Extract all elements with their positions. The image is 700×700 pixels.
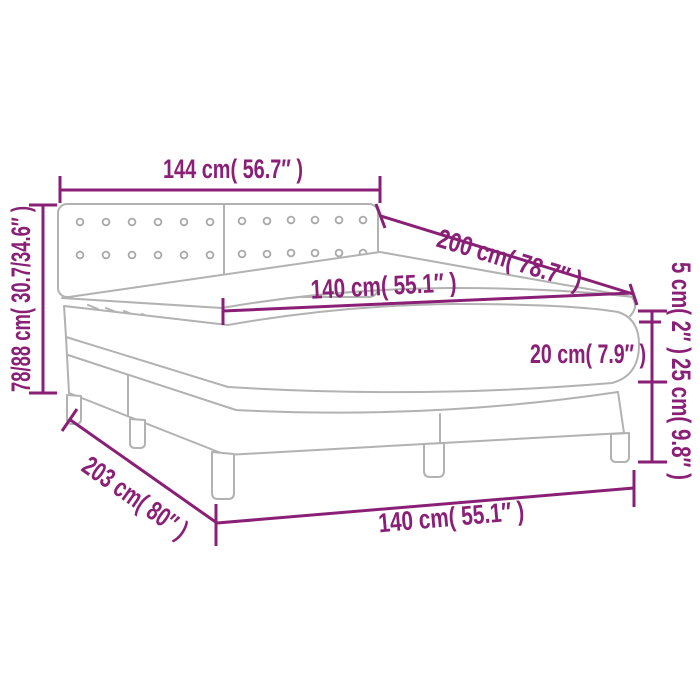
tufting-button (77, 219, 84, 226)
tufting-button (181, 219, 188, 226)
tufting-button (264, 218, 271, 225)
tufting-button (129, 252, 136, 259)
diagram-canvas: 144 cm( 56.7″ ) 78/88 cm( 30.7/34.6″ ) 2… (0, 0, 700, 700)
tufting-button (155, 219, 162, 226)
dim-label-mattress-height: 20 cm( 7.9″ ) (530, 339, 646, 369)
bed-leg (424, 443, 444, 477)
tufting-button (207, 219, 214, 226)
dim-label-topper-height: 5 cm( 2″ ) (666, 262, 696, 354)
tufting-button (239, 251, 246, 258)
dim-label-base-width: 140 cm( 55.1″ ) (377, 496, 525, 539)
bed-dimension-diagram: 144 cm( 56.7″ ) 78/88 cm( 30.7/34.6″ ) 2… (0, 0, 700, 700)
tufting-button (103, 252, 110, 259)
tufting-button (288, 217, 295, 224)
tufting-button (181, 252, 188, 259)
bed-legs (67, 395, 629, 499)
tufting-button (312, 250, 319, 257)
dimension-right-heights: 5 cm( 2″ ) 25 cm( 9.8″ ) (638, 262, 696, 480)
tufting-button (103, 219, 110, 226)
dim-label-total-height: 78/88 cm( 30.7/34.6″ ) (6, 206, 36, 392)
dim-label-headboard-width: 144 cm( 56.7″ ) (163, 154, 303, 184)
bed-leg (212, 452, 234, 499)
dimension-headboard-width: 144 cm( 56.7″ ) (60, 154, 380, 203)
bed-leg (611, 433, 629, 462)
tufting-button (239, 218, 246, 225)
tufting-button (264, 251, 271, 258)
tufting-button (336, 250, 343, 257)
tufting-button (129, 219, 136, 226)
dim-label-base-height: 25 cm( 9.8″ ) (666, 358, 696, 480)
tufting-button (312, 217, 319, 224)
bed-leg (130, 419, 145, 448)
tufting-button (155, 252, 162, 259)
tufting-button (336, 217, 343, 224)
dimension-mattress-height: 20 cm( 7.9″ ) (530, 339, 646, 369)
tufting-button (77, 252, 84, 259)
dim-label-mattress-width: 140 cm( 55.1″ ) (310, 267, 457, 305)
dimension-base-width: 140 cm( 55.1″ ) (216, 470, 634, 546)
tufting-button (288, 250, 295, 257)
dimension-total-height: 78/88 cm( 30.7/34.6″ ) (6, 205, 57, 393)
tufting-button (207, 252, 214, 259)
base-left-corner-edge (66, 337, 69, 393)
tufting-button (360, 217, 367, 224)
dimension-line (638, 311, 667, 462)
